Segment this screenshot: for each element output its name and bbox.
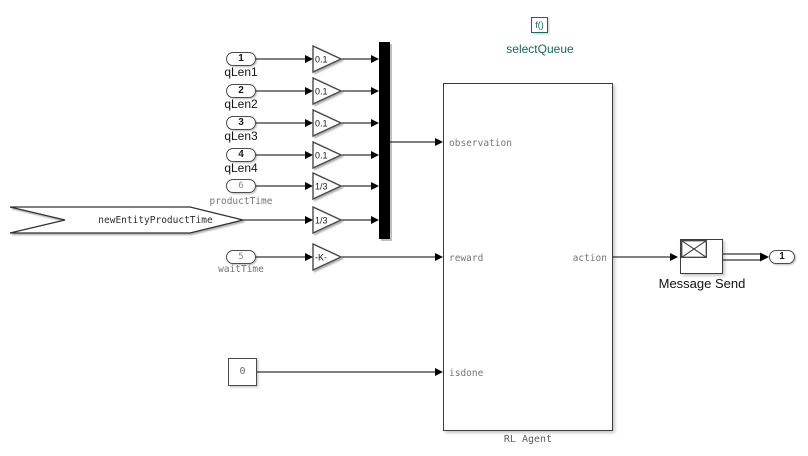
block-label: qLen1 bbox=[211, 66, 271, 79]
port-number: 4 bbox=[238, 150, 244, 160]
port-number: 2 bbox=[238, 86, 244, 96]
inport-qlen1[interactable]: 1 bbox=[226, 52, 256, 66]
gain-block[interactable]: 0.1 bbox=[313, 46, 341, 72]
gain-block[interactable]: 0.1 bbox=[313, 78, 341, 104]
block-label: qLen2 bbox=[211, 98, 271, 111]
message-send-label: Message Send bbox=[646, 276, 758, 291]
rl-agent-label: RL Agent bbox=[468, 434, 588, 445]
port-number: 1 bbox=[238, 54, 244, 64]
constant-value: 0 bbox=[239, 367, 245, 377]
outport-1[interactable]: 1 bbox=[769, 250, 795, 264]
port-label-action: action bbox=[573, 253, 607, 264]
port-number: 1 bbox=[779, 252, 785, 262]
port-label-observation: observation bbox=[449, 138, 512, 149]
wire[interactable] bbox=[613, 253, 678, 261]
gain-value: 0.1 bbox=[315, 87, 328, 97]
wire[interactable] bbox=[257, 368, 443, 376]
port-number: 5 bbox=[238, 253, 243, 262]
inport-waittime[interactable]: 5 bbox=[226, 250, 256, 264]
gain-block[interactable]: 0.1 bbox=[313, 110, 341, 136]
inport-qlen4[interactable]: 4 bbox=[226, 148, 256, 162]
wire[interactable] bbox=[341, 253, 443, 261]
input-arrow-label: newEntityProductTime bbox=[68, 215, 243, 226]
simulink-function-block[interactable]: f() bbox=[531, 17, 548, 33]
gain-value: 0.1 bbox=[315, 55, 328, 65]
block-label: qLen4 bbox=[211, 162, 271, 175]
port-number: 6 bbox=[238, 182, 243, 191]
gain-block[interactable]: 1/3 bbox=[313, 207, 341, 233]
port-label-isdone: isdone bbox=[449, 368, 483, 379]
inport-qlen3[interactable]: 3 bbox=[226, 116, 256, 130]
port-number: 3 bbox=[238, 118, 244, 128]
gain-block[interactable]: 0.1 bbox=[313, 142, 341, 168]
gain-value: 1/3 bbox=[315, 182, 328, 192]
gain-value: 1/3 bbox=[315, 216, 328, 226]
port-label-reward: reward bbox=[449, 253, 483, 264]
constant-block[interactable]: 0 bbox=[228, 358, 257, 386]
gain-block[interactable]: 1/3 bbox=[313, 173, 341, 199]
rl-agent-block[interactable]: observation reward isdone action bbox=[443, 83, 613, 431]
gain-value: 0.1 bbox=[315, 119, 328, 129]
message-send-block[interactable] bbox=[680, 239, 723, 274]
simulink-canvas: 0.1 0.1 0.1 0.1 1/3 1/3 -K- bbox=[0, 0, 808, 456]
block-label: waitTime bbox=[211, 264, 271, 275]
gain-block[interactable]: -K- bbox=[313, 244, 341, 270]
gain-value: -K- bbox=[315, 253, 327, 263]
gain-value: 0.1 bbox=[315, 151, 328, 161]
inport-producttime[interactable]: 6 bbox=[226, 179, 256, 193]
function-glyph: f() bbox=[535, 21, 544, 30]
wire[interactable] bbox=[390, 138, 443, 146]
envelope-icon bbox=[681, 240, 707, 258]
simulink-function-label: selectQueue bbox=[490, 43, 590, 56]
mux-block[interactable] bbox=[379, 42, 392, 241]
wire[interactable] bbox=[341, 55, 379, 224]
block-label: productTime bbox=[201, 196, 281, 207]
block-label: qLen3 bbox=[211, 130, 271, 143]
message-wire[interactable] bbox=[723, 253, 769, 262]
inport-qlen2[interactable]: 2 bbox=[226, 84, 256, 98]
